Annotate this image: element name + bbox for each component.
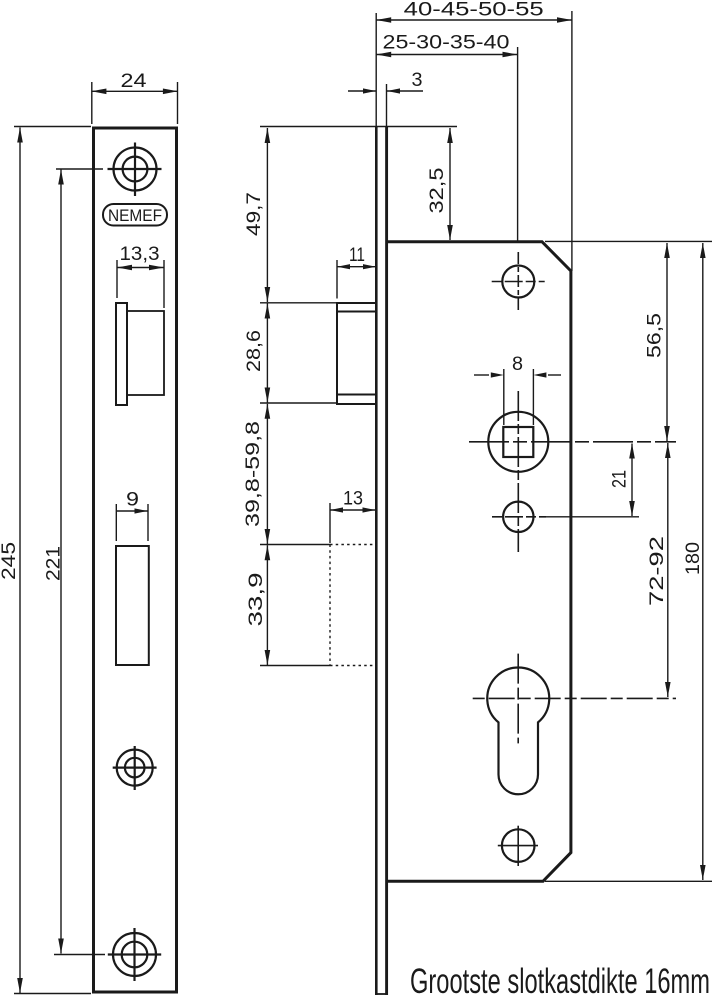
svg-text:3: 3 — [412, 70, 423, 91]
svg-text:8: 8 — [512, 354, 523, 375]
svg-text:11: 11 — [349, 245, 365, 266]
svg-text:NEMEF: NEMEF — [108, 206, 162, 225]
svg-text:56,5: 56,5 — [645, 313, 666, 358]
svg-text:32,5: 32,5 — [427, 168, 448, 214]
svg-text:Grootste slotkastdikte 16mm: Grootste slotkastdikte 16mm — [410, 962, 710, 1000]
svg-text:180: 180 — [683, 542, 704, 575]
svg-text:72-92: 72-92 — [647, 536, 668, 606]
svg-text:25-30-35-40: 25-30-35-40 — [383, 33, 510, 54]
svg-text:9: 9 — [126, 490, 139, 511]
svg-text:33,9: 33,9 — [246, 573, 267, 627]
svg-text:39,8-59,8: 39,8-59,8 — [243, 421, 264, 527]
svg-text:40-45-50-55: 40-45-50-55 — [404, 0, 544, 21]
svg-text:245: 245 — [0, 542, 20, 580]
svg-text:24: 24 — [121, 71, 148, 92]
svg-text:13,3: 13,3 — [120, 244, 160, 265]
svg-text:13: 13 — [343, 489, 363, 510]
svg-text:28,6: 28,6 — [244, 330, 265, 372]
svg-text:49,7: 49,7 — [244, 192, 265, 236]
svg-text:21: 21 — [610, 470, 631, 488]
